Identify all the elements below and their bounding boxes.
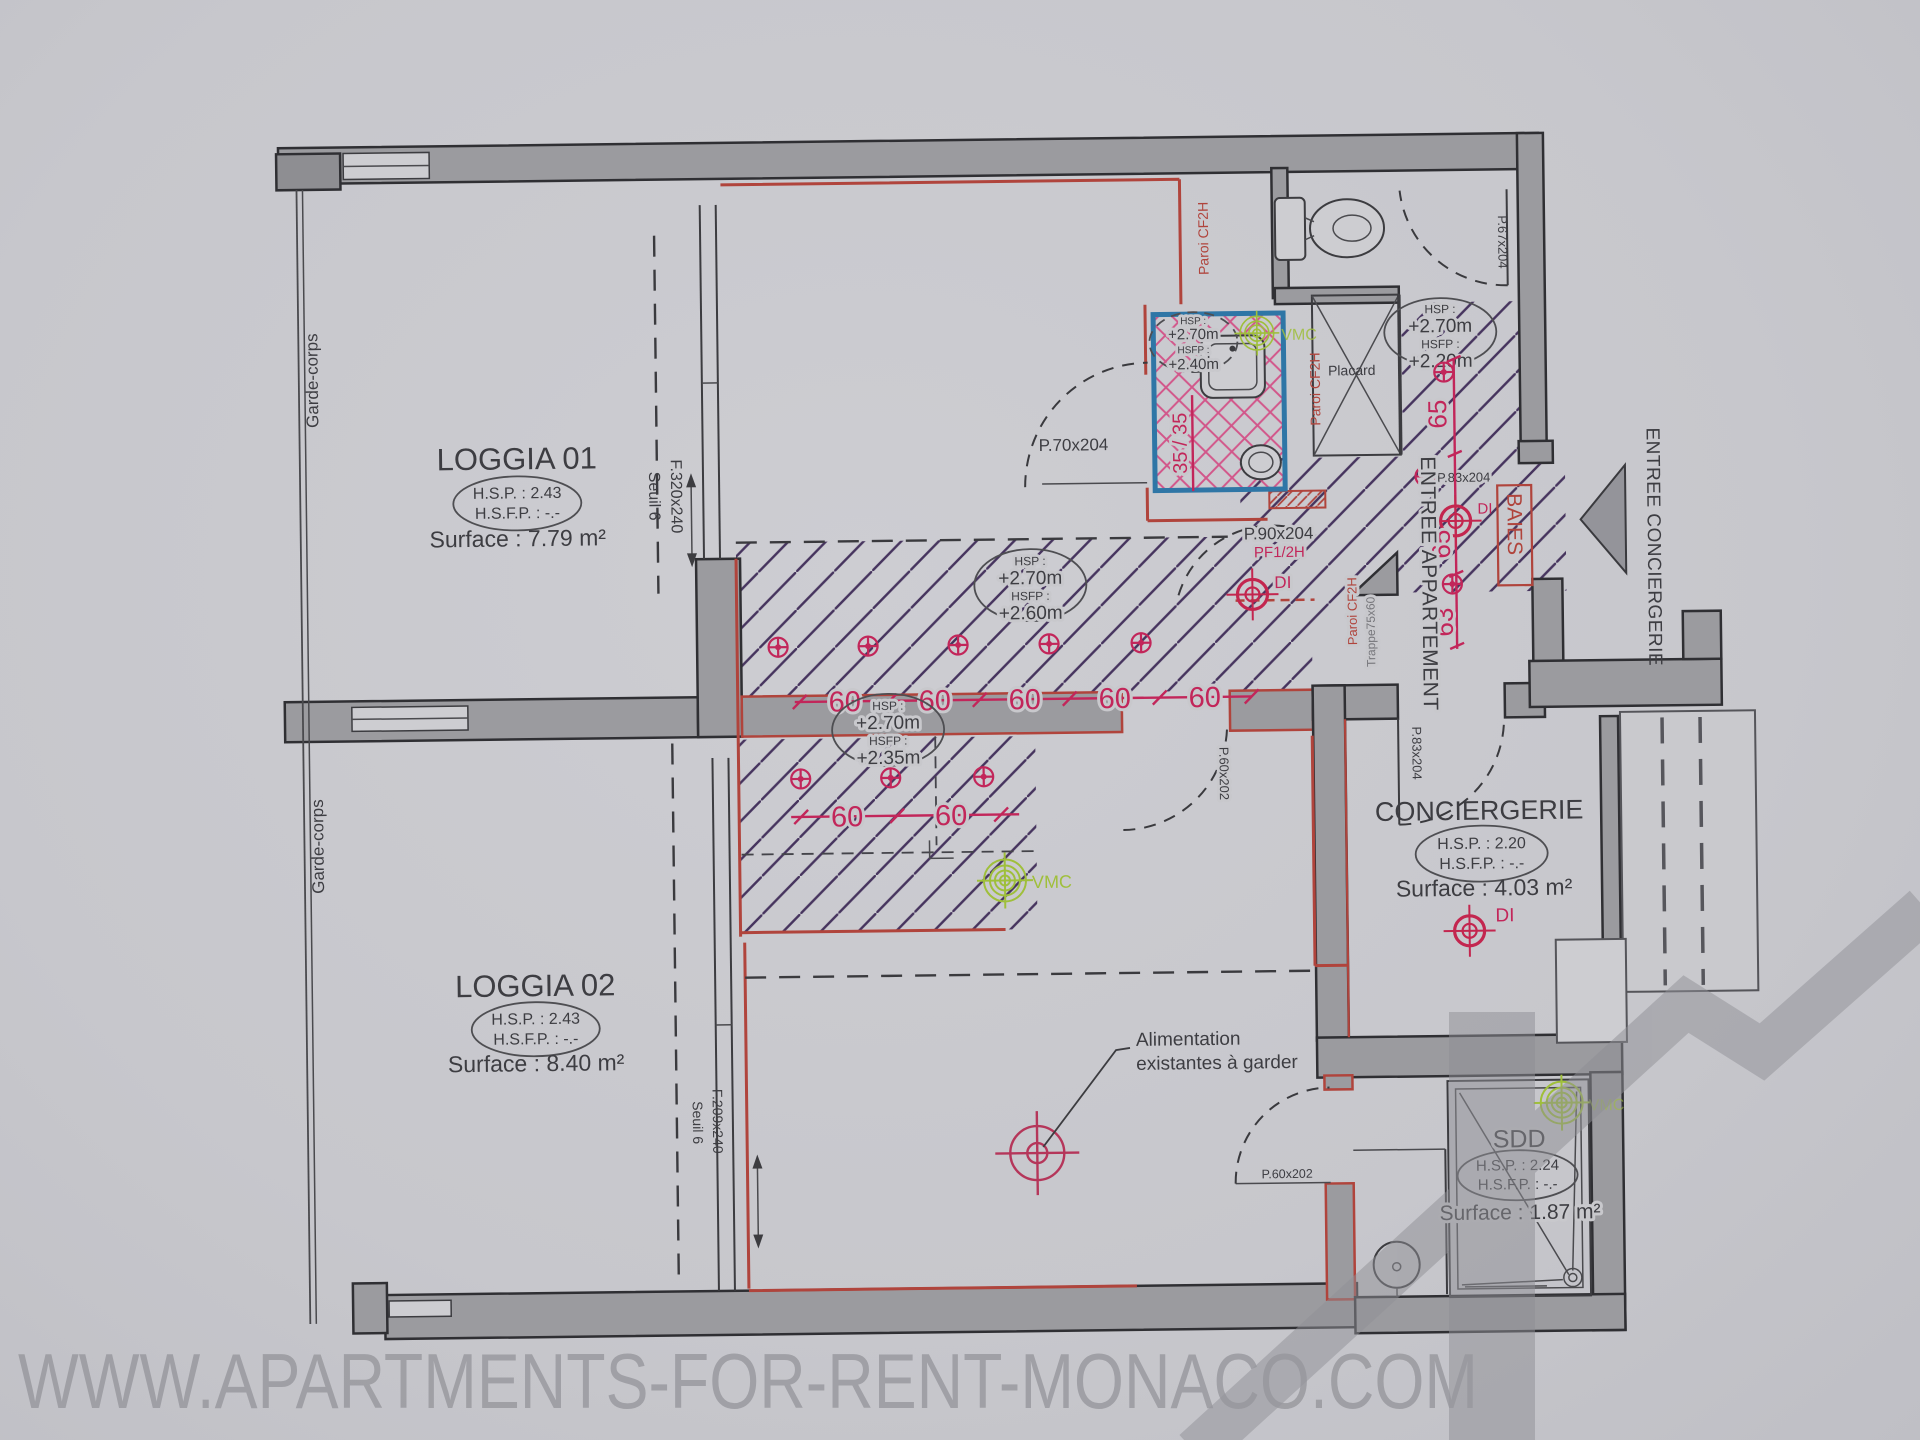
door-p60x202-sdd: P.60x202 bbox=[1235, 1088, 1331, 1184]
corridor-hsfp-value: +2.60m bbox=[999, 603, 1063, 625]
alimentation-label-1: Alimentation bbox=[1136, 1029, 1241, 1051]
room-hsfp: H.S.F.P. : -.- bbox=[1439, 855, 1524, 873]
room-title: LOGGIA 01 bbox=[436, 440, 597, 477]
room-hsfp: H.S.F.P. : -.- bbox=[493, 1031, 578, 1049]
dim-60: 60 bbox=[831, 801, 864, 833]
soffit-hsp-value: +2.70m bbox=[856, 712, 920, 734]
room-surface: Surface : 8.40 m² bbox=[448, 1049, 625, 1077]
door-p60-hall-label: P.60x202 bbox=[1216, 747, 1232, 800]
door-p60x202-hall: P.60x202 bbox=[1122, 724, 1232, 830]
room-hsp: H.S.P. : 2.43 bbox=[473, 485, 562, 503]
soffit-hsp-label: HSP : bbox=[872, 699, 903, 713]
baies-label: BAIES bbox=[1502, 493, 1526, 555]
floor-plan-photo: HSP : +2.70m HSFP : +2.40m 35 / 35 VMC bbox=[0, 0, 1920, 1440]
watermark-url: WWW.APARTMENTS-FOR-RENT-MONACO.COM bbox=[18, 1337, 1478, 1425]
room-hsp: H.S.P. : 2.43 bbox=[491, 1011, 580, 1029]
vmc-label: VMC bbox=[1032, 872, 1072, 892]
shower-dim-35: 35 / 35 bbox=[1169, 413, 1192, 474]
alimentation-note: Alimentation existantes à garder bbox=[994, 1028, 1300, 1196]
di-label: DI bbox=[1495, 905, 1514, 926]
shower-hsfp-value: +2.40m bbox=[1168, 356, 1219, 374]
door-p67x204-wc: P.67x204 bbox=[1400, 189, 1511, 286]
di-label: DI bbox=[1477, 500, 1492, 517]
di-target-icon bbox=[1443, 904, 1496, 957]
room-surface: Surface : 4.03 m² bbox=[1396, 874, 1573, 902]
paroi-cf2h-label: Paroi CF2H bbox=[1344, 577, 1360, 645]
entry-hsfp-value: +2.20m bbox=[1409, 351, 1473, 373]
door-p67-label: P.67x204 bbox=[1495, 215, 1511, 268]
room-loggia01: LOGGIA 01 H.S.P. : 2.43 H.S.F.P. : -.- S… bbox=[428, 440, 606, 552]
entry-hsp-value: +2.70m bbox=[1408, 316, 1472, 338]
garde-corps-label: Garde-corps bbox=[308, 799, 328, 894]
entry-hsp-label: HSP : bbox=[1424, 302, 1455, 316]
shower-hsfp-label: HSFP : bbox=[1177, 345, 1209, 356]
door-p60-sdd-label: P.60x202 bbox=[1261, 1167, 1312, 1182]
trappe-label: Trappe75x60 bbox=[1364, 596, 1379, 667]
paroi-cf2h-label: Paroi CF2H bbox=[1195, 202, 1212, 275]
alimentation-target-icon bbox=[995, 1111, 1080, 1196]
room-title: CONCIERGERIE bbox=[1375, 794, 1584, 827]
dim-60: 60 bbox=[935, 800, 968, 832]
room-hsfp: H.S.F.P. : -.- bbox=[475, 505, 560, 523]
di-label: DI bbox=[1274, 573, 1291, 592]
wc-toilet bbox=[1275, 197, 1385, 260]
corridor-hsp-value: +2.70m bbox=[998, 568, 1062, 590]
entry-hsfp-label: HSFP : bbox=[1421, 337, 1460, 351]
corridor-soffit-hatch bbox=[736, 537, 1230, 697]
room-loggia02: LOGGIA 02 H.S.P. : 2.43 H.S.F.P. : -.- S… bbox=[447, 967, 625, 1077]
window-ref-label: F.209x240 bbox=[709, 1089, 726, 1154]
soffit-hsfp-value: +2.35m bbox=[856, 747, 920, 769]
door-p70-label: P.70x204 bbox=[1039, 435, 1109, 455]
door-p90-label: P.90x204 bbox=[1244, 524, 1314, 544]
entree-conciergerie-label: ENTREE CONCIERGERIE bbox=[1641, 427, 1665, 666]
placard-label: Placard bbox=[1328, 362, 1376, 379]
window-seuil-label: Seuil 6 bbox=[645, 472, 663, 521]
shower-hsp-value: +2.70m bbox=[1168, 326, 1219, 344]
door-p70x204: P.70x204 bbox=[1024, 363, 1149, 488]
door-p83-conc-label: P.83x204 bbox=[1409, 726, 1425, 779]
dim-60: 60 bbox=[1188, 682, 1221, 714]
dim-60: 60 bbox=[1098, 683, 1131, 715]
room-hsp: H.S.P. : 2.20 bbox=[1437, 835, 1526, 853]
door-p83-entry-label: P.83x204 bbox=[1437, 470, 1490, 486]
alimentation-label-2: existantes à garder bbox=[1136, 1052, 1299, 1075]
paroi-cf2h-label: Paroi CF2H bbox=[1307, 352, 1324, 425]
window-seuil-label: Seuil 6 bbox=[690, 1101, 707, 1144]
garde-corps-label: Garde-corps bbox=[302, 333, 322, 428]
room-conciergerie: CONCIERGERIE H.S.P. : 2.20 H.S.F.P. : -.… bbox=[1375, 794, 1585, 958]
soffit-hsfp-label: HSFP : bbox=[869, 734, 908, 748]
vmc-label: VMC bbox=[1281, 327, 1317, 344]
corridor-hsp-label: HSP : bbox=[1014, 554, 1045, 568]
window-ref-label: F.320x240 bbox=[667, 459, 685, 533]
entree-appartement-label: ENTREE APPARTEMENT bbox=[1416, 456, 1442, 711]
entree-conciergerie-arrow-icon bbox=[1580, 465, 1626, 574]
window-f320x240 bbox=[683, 205, 720, 567]
corridor-hsfp-label: HSFP : bbox=[1011, 589, 1050, 603]
dim-60: 60 bbox=[1008, 684, 1041, 716]
room-surface: Surface : 7.79 m² bbox=[429, 524, 606, 552]
dim-65: 65 bbox=[1422, 400, 1452, 429]
shower-drain-basin bbox=[1241, 445, 1281, 479]
door-p90-type: PF1/2H bbox=[1254, 544, 1305, 562]
room-title: LOGGIA 02 bbox=[455, 967, 616, 1004]
